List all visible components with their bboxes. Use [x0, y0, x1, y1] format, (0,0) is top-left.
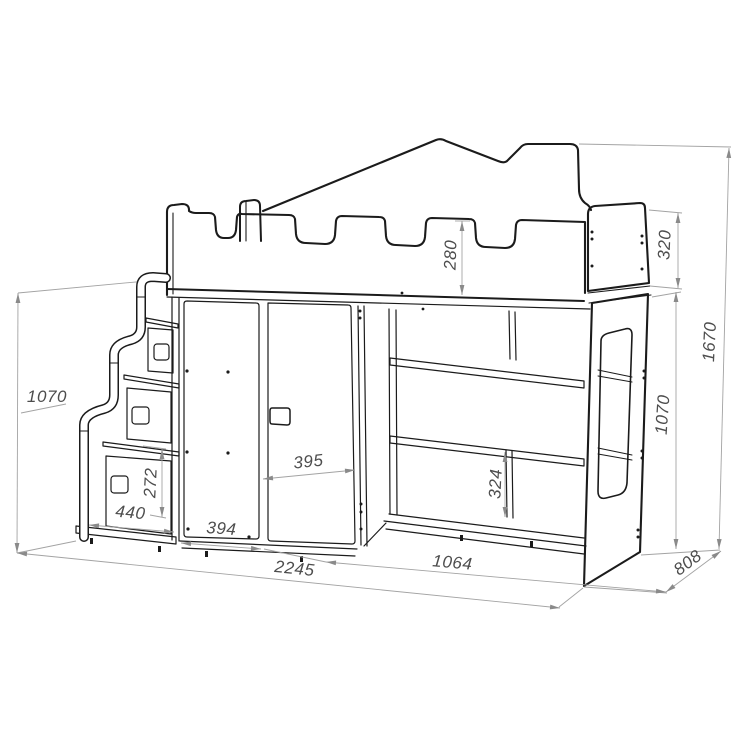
- wardrobe-right-door: [268, 303, 355, 544]
- headboard-bottom-extension: [650, 286, 682, 289]
- dim-left-door-width: 394: [206, 518, 237, 539]
- depth-front-extension: [584, 587, 667, 593]
- step2-tread: [124, 375, 179, 388]
- dim-right-door-width: 395: [292, 451, 324, 473]
- middle-shelf: [390, 436, 584, 466]
- dim-left-side-height: 1070: [27, 387, 67, 406]
- dim-stair-drawer-height: 272: [140, 467, 161, 499]
- dim-line-right-door-width: [263, 470, 355, 479]
- step3-handle: [111, 476, 128, 493]
- furniture-drawing: [76, 139, 651, 586]
- right-end-panel: [584, 294, 648, 586]
- step1-tread: [146, 318, 178, 328]
- window-cutout: [598, 329, 632, 499]
- wardrobe: [172, 297, 386, 556]
- wardrobe-corner-stile-front: [358, 306, 361, 545]
- floor-corner-extension: [17, 541, 76, 553]
- dim-shelf-section-width: 1064: [432, 551, 474, 573]
- shelves-through-window: [598, 370, 632, 460]
- dim-line-left-height: [17, 293, 18, 553]
- shelf-base-top: [389, 514, 584, 538]
- overall-width-right-extension: [559, 588, 583, 607]
- dim-right-underbed-height: 1070: [652, 394, 674, 435]
- dimension-labels: 1070 2245 1064 808 1670 1070 320 280 440…: [27, 229, 720, 580]
- wardrobe-left-door: [184, 301, 259, 539]
- dim-overall-width: 2245: [273, 557, 316, 580]
- castle-back-panel: [263, 139, 591, 211]
- handrail-top-post: [240, 200, 261, 241]
- right-underbed-top-extension: [652, 292, 681, 297]
- dim-overall-height: 1670: [699, 321, 720, 362]
- dim-shelf-divider-height: 324: [485, 468, 506, 499]
- dim-guard-rail-height: 280: [440, 239, 460, 271]
- headboard-panel: [588, 203, 649, 291]
- lower-divider: [506, 450, 513, 518]
- step3-tread: [103, 442, 179, 456]
- shelf-section: [384, 309, 586, 554]
- wardrobe-corner-stile-back: [364, 306, 367, 546]
- shelf-left-wall-front: [389, 309, 390, 514]
- headboard-top-extension: [649, 210, 682, 213]
- technical-drawing-page: 1070 2245 1064 808 1670 1070 320 280 440…: [0, 0, 750, 750]
- step2-handle: [132, 407, 149, 424]
- door-handle: [270, 408, 290, 425]
- loft-bed-technical-drawing: 1070 2245 1064 808 1670 1070 320 280 440…: [0, 0, 750, 750]
- dim-line-overall-height: [719, 148, 729, 549]
- right-bottom-extension: [641, 550, 720, 555]
- dim-headboard-height: 320: [654, 229, 675, 260]
- guard-rail: [167, 204, 585, 295]
- screw-hole-dots: [185, 231, 645, 539]
- shelf-base-apron-top: [384, 521, 586, 546]
- shelf-left-wall-back: [396, 310, 397, 515]
- upper-divider: [509, 311, 516, 360]
- dim-stair-step-width: 440: [115, 502, 147, 524]
- overall-height-top-extension: [579, 144, 731, 147]
- upper-shelf: [390, 358, 584, 388]
- stair-height-bottom-extension: [150, 515, 166, 518]
- step1-handle: [154, 344, 169, 360]
